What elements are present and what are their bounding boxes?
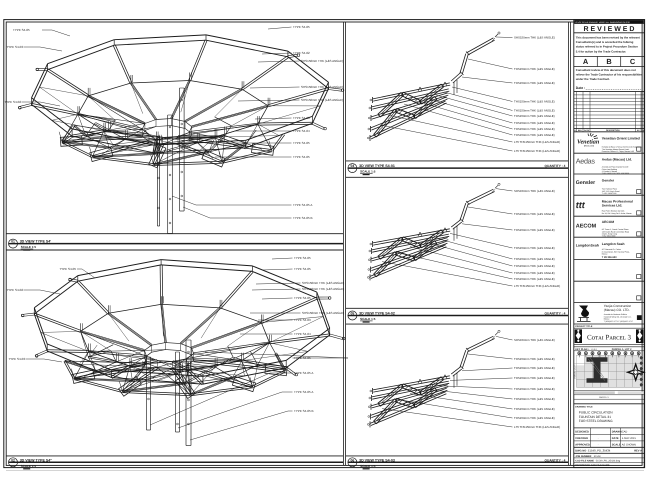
svg-text:T 853 2833 1113 F 853 2830 9: T 853 2833 1113 F 853 2830 9969 — [602, 172, 629, 175]
svg-text:No 28, Edf. Hong Fat 2 Andar,: No 28, Edf. Hong Fat 2 Andar, Macau — [602, 212, 632, 215]
svg-text:PARCEL 1, LOT 1: PARCEL 1, LOT 1 — [574, 363, 577, 378]
svg-text:05: 05 — [351, 312, 355, 316]
svg-text:TYPE S4-05 A: TYPE S4-05 A — [293, 203, 312, 207]
svg-text:ttt: ttt — [576, 200, 586, 210]
svg-text:TYPE S4-05: TYPE S4-05 — [293, 25, 310, 29]
svg-text:THS150mm THK (L&S ANGLE): THS150mm THK (L&S ANGLE) — [514, 271, 555, 275]
svg-text:relieve the Trade Contracto: relieve the Trade Contractor of his resp… — [576, 73, 643, 77]
svg-text:QUANTITY : 4: QUANTITY : 4 — [545, 164, 566, 168]
svg-text:T (853)2872 2771 F (853)2872: T (853)2872 2771 F (853)2872 2717 — [604, 320, 633, 323]
svg-text:THS150mm THK (L&S ANGLE): THS150mm THK (L&S ANGLE) — [514, 397, 555, 401]
svg-text:TYPE S4-03: TYPE S4-03 — [6, 45, 23, 49]
svg-text:THS150mm THK (L&S ANGLE): THS150mm THK (L&S ANGLE) — [514, 357, 555, 361]
svg-text:TYPE S4-02: TYPE S4-02 — [4, 100, 21, 104]
svg-text:LangdonSeah: LangdonSeah — [576, 244, 599, 248]
svg-text:3D VIEW TYPE S4-01: 3D VIEW TYPE S4-01 — [359, 164, 395, 168]
svg-text:L75 THS150mm THK (L&S ANGLE): L75 THS150mm THK (L&S ANGLE) — [514, 425, 560, 429]
svg-text:THS150mm THK (L&S ANGLE): THS150mm THK (L&S ANGLE) — [514, 246, 555, 250]
svg-text:SCALE 1:5: SCALE 1:5 — [360, 170, 376, 174]
svg-text:Aedas (Macau) Ltd.: Aedas (Macau) Ltd. — [602, 158, 632, 162]
svg-text:TYPE S4-05: TYPE S4-05 — [59, 267, 76, 271]
svg-text:L75 THS150mm THK (L&S ANGLE): L75 THS150mm THK (L&S ANGLE) — [514, 140, 560, 144]
svg-text:SHS150mm THK (L&S ANGLE): SHS150mm THK (L&S ANGLE) — [302, 287, 344, 291]
svg-text:DWG NO: DWG NO — [575, 450, 586, 453]
svg-text:THS150mm THK (L&S ANGLE): THS150mm THK (L&S ANGLE) — [514, 228, 555, 232]
svg-text:status referred to in Pro: status referred to in Project Procedure … — [576, 45, 638, 49]
svg-text:REV A: REV A — [634, 450, 642, 453]
svg-text:3D VIEW TYPE S4-03: 3D VIEW TYPE S4-03 — [359, 458, 395, 462]
svg-text:-: - — [13, 465, 14, 468]
svg-text:under the Trade Contract.: under the Trade Contract. — [576, 77, 610, 81]
svg-text:TYPE S4-05 B: TYPE S4-05 B — [294, 409, 314, 413]
svg-text:DATE: DATE — [612, 437, 619, 440]
svg-text:This document has been rev: This document has been revised by the re… — [576, 35, 640, 39]
svg-text:T +852 2868 5233: T +852 2868 5233 — [602, 192, 617, 195]
svg-text:Venetian Orient Limited: Venetian Orient Limited — [602, 137, 640, 141]
svg-text:SHS150mm THK (L&S ANGLE): SHS150mm THK (L&S ANGLE) — [301, 85, 343, 89]
svg-text:TYPE S4-04: TYPE S4-04 — [294, 332, 311, 336]
svg-text:THS150mm THK (L&S ANGLE): THS150mm THK (L&S ANGLE) — [514, 257, 555, 261]
svg-text:3D VIEW TYPE S4': 3D VIEW TYPE S4' — [20, 240, 52, 244]
svg-text:L75 THS150mm THK (L&S ANGLE): L75 THS150mm THK (L&S ANGLE) — [514, 149, 560, 153]
svg-text:APPROVED: APPROVED — [575, 443, 590, 446]
svg-text:THS150mm THK (L&S ANGLE): THS150mm THK (L&S ANGLE) — [514, 133, 555, 137]
svg-text:THS150mm THK (L&S ANGLE): THS150mm THK (L&S ANGLE) — [514, 121, 555, 125]
svg-text:SCALE: SCALE — [612, 443, 621, 446]
svg-text:THS150mm THK (L&S ANGLE): THS150mm THK (L&S ANGLE) — [514, 366, 555, 370]
svg-text:01: 01 — [11, 240, 15, 244]
svg-text:TYPE S4-02: TYPE S4-02 — [293, 51, 310, 55]
svg-text:-: - — [13, 246, 14, 249]
svg-text:QUANTITY : 4: QUANTITY : 4 — [545, 458, 566, 462]
svg-text:THS150mm THK (L&S ANGLE): THS150mm THK (L&S ANGLE) — [514, 387, 555, 391]
svg-text:L75 THS150mm THK (L&S ANGLE): L75 THS150mm THK (L&S ANGLE) — [514, 284, 560, 288]
svg-text:THS150mm THK (L&S ANGLE): THS150mm THK (L&S ANGLE) — [514, 416, 555, 420]
svg-text:THS150mm THK (L&S ANGLE): THS150mm THK (L&S ANGLE) — [514, 127, 555, 131]
svg-text:Langdon Seah: Langdon Seah — [602, 242, 625, 246]
svg-text:REFERENCE CAD FILE NAME: REFERENCE CAD FILE NAME — [575, 464, 610, 467]
svg-text:T 28 336 633: T 28 336 633 — [602, 256, 617, 259]
svg-text:TYPE S4-05: TYPE S4-05 — [294, 356, 311, 360]
svg-text:TYPE S4-05: TYPE S4-05 — [294, 267, 311, 271]
svg-text:TYPE S4-02: TYPE S4-02 — [6, 288, 23, 292]
svg-text:SHS150mm THK (L&S ANGLE): SHS150mm THK (L&S ANGLE) — [302, 311, 344, 315]
svg-text:THS150mm THK (L&S ANGLE): THS150mm THK (L&S ANGLE) — [514, 81, 555, 85]
svg-text:CAD: CAD — [622, 430, 628, 433]
svg-text:3D VIEW TYPE S4'': 3D VIEW TYPE S4'' — [20, 458, 52, 462]
svg-text:THS150mm THK (L&S ANGLE): THS150mm THK (L&S ANGLE) — [514, 277, 555, 281]
svg-text:Cᴏᴛᴀɪ Pᴀʀᴄᴇʟ 3: Cᴏᴛᴀɪ Pᴀʀᴄᴇʟ 3 — [587, 334, 631, 342]
svg-text:Macau: Macau — [602, 253, 607, 256]
svg-text:TYPE S4-05: TYPE S4-05 — [293, 141, 310, 145]
svg-text:SHS150mm THK (L&S ANGLE): SHS150mm THK (L&S ANGLE) — [514, 338, 555, 342]
svg-text:DESIGNED: DESIGNED — [575, 430, 589, 433]
svg-text:THS150mm THK (L&S ANGLE): THS150mm THK (L&S ANGLE) — [514, 114, 555, 118]
svg-text:06: 06 — [351, 458, 355, 462]
svg-text:51549_PD_35434.dwg: 51549_PD_35434.dwg — [596, 459, 621, 462]
svg-text:JOB NUMBER: JOB NUMBER — [575, 455, 591, 458]
svg-text:-: - — [352, 465, 353, 468]
svg-text:A: A — [583, 57, 589, 66]
svg-text:TYPE S4-03: TYPE S4-03 — [294, 318, 311, 322]
svg-text:CAD FILE NAME: CAD FILE NAME — [575, 459, 594, 462]
svg-text:THS150mm THK (L&S ANGLE): THS150mm THK (L&S ANGLE) — [514, 67, 555, 71]
svg-text:Aedas: Aedas — [576, 157, 596, 166]
svg-text:B: B — [606, 57, 611, 66]
svg-text:Consultants(s) and is accor: Consultants(s) and is accorded the follo… — [576, 40, 634, 44]
svg-text:THS150mm THK (L&S ANGLE): THS150mm THK (L&S ANGLE) — [514, 376, 555, 380]
svg-text:3D VIEW TYPE S4-02: 3D VIEW TYPE S4-02 — [359, 312, 395, 316]
svg-text:AECOM: AECOM — [576, 224, 597, 230]
svg-text:SHS150mm THK (L&S ANGLE): SHS150mm THK (L&S ANGLE) — [301, 98, 343, 102]
svg-text:TYPE S4-04: TYPE S4-04 — [293, 129, 310, 133]
svg-text:THS150mm THK (L&S ANGLE): THS150mm THK (L&S ANGLE) — [514, 407, 555, 411]
svg-text:Date :: Date : — [576, 86, 585, 90]
svg-text:1-MAY-2015: 1-MAY-2015 — [622, 437, 637, 440]
svg-text:-: - — [352, 318, 353, 321]
svg-text:-: - — [598, 443, 599, 446]
svg-text:CHECKED: CHECKED — [575, 437, 588, 440]
svg-text:04: 04 — [351, 164, 355, 168]
svg-text:AS SHOWN: AS SHOWN — [622, 443, 636, 446]
svg-text:51549_PD_35434: 51549_PD_35434 — [588, 449, 611, 453]
svg-text:Consultant review of this: Consultant review of this document does … — [576, 68, 636, 72]
svg-text:PROJECT TITLE: PROJECT TITLE — [575, 325, 593, 328]
svg-text:SCALE 1:5: SCALE 1:5 — [360, 464, 376, 468]
svg-text:PARCEL 3: PARCEL 3 — [599, 396, 609, 399]
svg-text:TYPE S4-05 A: TYPE S4-05 A — [294, 371, 313, 375]
svg-text:Services Ltd.: Services Ltd. — [602, 204, 623, 208]
svg-text:SHS150mm THK (L&S ANGLE): SHS150mm THK (L&S ANGLE) — [301, 59, 343, 63]
svg-text:T 852 3922 9000: T 852 3922 9000 — [602, 234, 616, 237]
svg-text:TYPE S4-05: TYPE S4-05 — [294, 256, 311, 260]
svg-text:02: 02 — [11, 458, 15, 462]
svg-text:31528: 31528 — [594, 455, 601, 458]
svg-text:AECOM: AECOM — [602, 220, 615, 224]
svg-text:R E V I E W E D: R E V I E W E D — [584, 26, 635, 33]
svg-text:C: C — [630, 57, 636, 66]
svg-text:TYPE S4-05 A: TYPE S4-05 A — [294, 390, 313, 394]
svg-text:SHS150mm THK (L&S ANGLE): SHS150mm THK (L&S ANGLE) — [514, 189, 555, 193]
svg-text:THS150mm THK (L&S ANGLE): THS150mm THK (L&S ANGLE) — [514, 100, 555, 104]
svg-text:SHS150mm THK (L&S ANGLE): SHS150mm THK (L&S ANGLE) — [302, 281, 344, 285]
svg-text:-: - — [598, 437, 599, 440]
svg-text:TYPE S4-05 B: TYPE S4-05 B — [293, 216, 313, 220]
svg-text:TYPE S4-05: TYPE S4-05 — [294, 296, 311, 300]
svg-text:Gensler: Gensler — [602, 179, 615, 183]
svg-text:(Macau) CO. LTD.: (Macau) CO. LTD. — [604, 308, 630, 312]
svg-text:THS150mm THK (L&S ANGLE): THS150mm THK (L&S ANGLE) — [514, 212, 555, 216]
svg-text:QUANTITY : 4: QUANTITY : 4 — [545, 312, 566, 316]
svg-text:-: - — [352, 170, 353, 173]
svg-text:TYPE S4-03: TYPE S4-03 — [293, 116, 310, 120]
svg-text:FOR STEEL DRAWING: FOR STEEL DRAWING — [579, 419, 613, 423]
svg-text:Executive Offices-L2, Taipa, M: Executive Offices-L2, Taipa, Macao SAR — [602, 150, 635, 153]
svg-text:TYPE S4-05: TYPE S4-05 — [13, 28, 30, 32]
svg-text:THS150mm THK (L&S ANGLE): THS150mm THK (L&S ANGLE) — [514, 264, 555, 268]
svg-text:TYPE S4-03: TYPE S4-03 — [8, 357, 25, 361]
svg-text:DRAWN: DRAWN — [612, 430, 622, 433]
svg-text:SCALE 1:5: SCALE 1:5 — [360, 317, 376, 321]
svg-text:5.4 for action by the Tra: 5.4 for action by the Trade Contractor. — [576, 49, 627, 53]
svg-text:Gensler: Gensler — [576, 180, 595, 186]
svg-text:DRAWING TITLE: DRAWING TITLE — [575, 405, 593, 408]
svg-text:THS150mm THK (L&S ANGLE): THS150mm THK (L&S ANGLE) — [514, 109, 555, 113]
svg-text:SHS150mm THK (L&S ANGLE): SHS150mm THK (L&S ANGLE) — [514, 36, 555, 40]
svg-text:SCALE 1:5: SCALE 1:5 — [21, 464, 37, 468]
svg-text:TYPE S4-05: TYPE S4-05 — [293, 155, 310, 159]
svg-text:SCALE 1:5: SCALE 1:5 — [21, 245, 37, 249]
svg-text:MACAO: MACAO — [584, 144, 595, 147]
